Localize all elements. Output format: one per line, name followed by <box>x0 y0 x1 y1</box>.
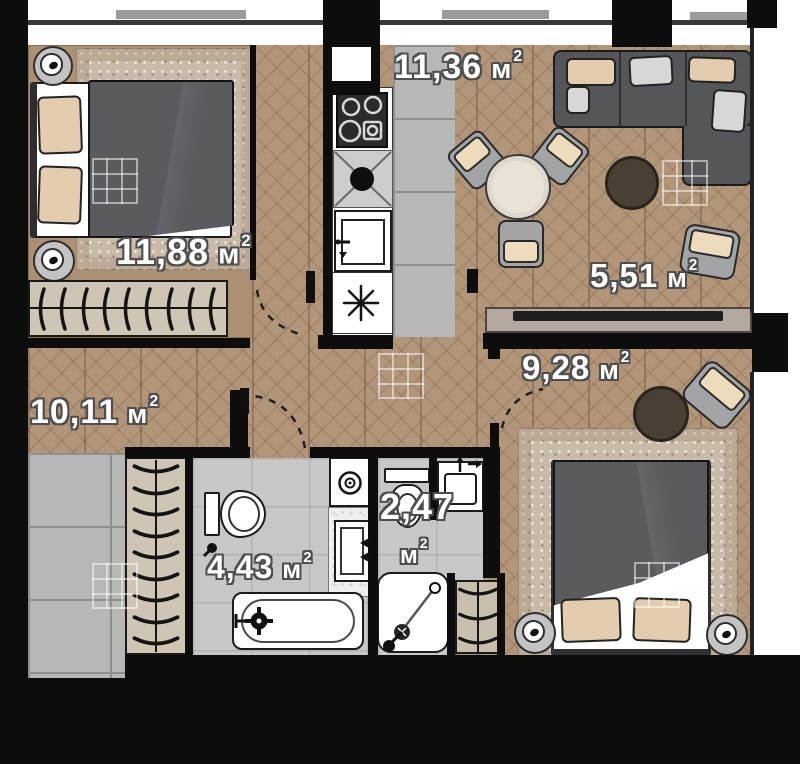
room-area-label-wc-unit: м2 <box>400 541 429 570</box>
pillow <box>566 58 616 86</box>
area-unit: м2 <box>667 263 698 294</box>
developer-watermark <box>92 158 138 204</box>
room-area-label-hallway: 9,28 м2 <box>522 349 630 387</box>
pillow <box>560 597 621 643</box>
bedside-lamp-icon <box>706 614 748 656</box>
stove-icon <box>336 92 388 148</box>
room-area-label-bedroom1: 11,88 м2 <box>116 231 252 273</box>
area-unit: м2 <box>218 238 252 272</box>
wall <box>752 313 788 372</box>
hanger-column <box>457 586 499 648</box>
hanger-icon <box>185 286 197 332</box>
area-value: 5,51 <box>590 257 658 295</box>
wall-exterior-mass <box>0 678 187 764</box>
area-unit: м2 <box>491 53 523 85</box>
hanger-icon <box>121 286 133 332</box>
dining-table <box>485 154 551 220</box>
area-value: 11,36 <box>394 48 482 87</box>
wall <box>185 457 193 655</box>
window-frame <box>750 372 754 655</box>
hanger-icon <box>131 549 181 563</box>
wall <box>483 333 752 349</box>
wall <box>490 423 499 449</box>
hanger-icon <box>57 286 69 332</box>
pouf <box>633 386 689 442</box>
room-area-label-bathroom: 4,43 м2 <box>207 549 312 586</box>
hanger-icon <box>36 286 48 332</box>
tv-icon <box>513 311 723 321</box>
window-frame <box>750 28 754 313</box>
hanger-icon <box>131 571 181 585</box>
area-value: 2,47 <box>380 486 454 528</box>
wall <box>318 335 393 349</box>
hanger-icon <box>131 506 181 520</box>
wall-exterior-mass <box>187 655 800 764</box>
balcony-bar <box>442 10 549 19</box>
hanger-column <box>131 463 181 649</box>
bedside-lamp-icon <box>33 46 73 86</box>
room-area-label-corridor: 10,11 м2 <box>30 393 159 432</box>
wall <box>497 573 505 655</box>
wall <box>125 655 187 678</box>
bathtub-basin <box>241 599 355 643</box>
wall <box>0 0 28 764</box>
pillow <box>628 55 674 87</box>
bedside-lamp-icon <box>514 612 556 654</box>
pillow <box>688 56 737 84</box>
hanger-icon <box>164 286 176 332</box>
developer-watermark <box>634 562 680 608</box>
wall <box>483 447 500 578</box>
wall <box>310 447 483 458</box>
floor-plan-canvas: 11,88 м2 11,36 м2 5,51 м2 9,28 м2 10,11 … <box>0 0 800 764</box>
room-area-label-kitchen: 11,36 м2 <box>394 48 523 87</box>
area-unit: м2 <box>599 355 630 386</box>
hanger-icon <box>131 592 181 606</box>
washing-machine-icon <box>329 457 370 507</box>
pillow <box>37 165 83 225</box>
wall <box>368 458 378 656</box>
wall <box>747 0 777 28</box>
dishwasher-door <box>341 219 385 265</box>
vanity-door <box>340 527 364 575</box>
wall <box>488 349 500 359</box>
hanger-icon <box>131 614 181 628</box>
area-value: 11,88 <box>116 231 209 273</box>
pillow <box>37 95 83 155</box>
toilet-tank <box>384 468 430 483</box>
kitchen-tile-floor <box>393 45 455 337</box>
dining-chair <box>498 220 544 268</box>
area-unit: м2 <box>282 556 312 585</box>
developer-watermark <box>92 563 138 609</box>
room-area-label-wc-value: 2,47 <box>380 486 454 528</box>
developer-watermark <box>378 353 424 399</box>
hanger-icon <box>131 463 181 477</box>
pillow <box>566 86 590 114</box>
pillow <box>711 89 748 133</box>
bedside-lamp-icon <box>33 240 75 282</box>
developer-watermark <box>662 160 708 206</box>
area-unit: м2 <box>127 398 159 430</box>
area-value: 9,28 <box>522 349 590 387</box>
pouf <box>605 156 659 210</box>
hanger-icon <box>206 286 218 332</box>
wall <box>230 390 248 447</box>
hanger-icon <box>457 635 499 648</box>
kitchen-light-zone <box>332 272 393 334</box>
toilet-tank <box>204 492 220 536</box>
hanger-icon <box>457 586 499 599</box>
area-value: 4,43 <box>207 549 273 586</box>
wall <box>467 269 478 293</box>
wall <box>447 573 455 655</box>
hanger-row <box>36 285 218 332</box>
hanger-icon <box>142 286 154 332</box>
area-value: 10,11 <box>30 393 118 432</box>
hanger-icon <box>131 528 181 542</box>
wall <box>28 338 250 348</box>
hanger-icon <box>131 635 181 649</box>
hanger-icon <box>131 485 181 499</box>
sink-counter <box>333 150 393 208</box>
area-unit: м2 <box>400 541 429 570</box>
hanger-icon <box>457 611 499 624</box>
shower-icon <box>377 572 449 653</box>
hanger-icon <box>100 286 112 332</box>
room-area-label-living: 5,51 м2 <box>590 257 698 295</box>
wall <box>612 0 672 47</box>
shaft-window <box>332 47 371 81</box>
balcony-bar <box>116 10 246 19</box>
hanger-icon <box>79 286 91 332</box>
wall <box>323 95 332 338</box>
